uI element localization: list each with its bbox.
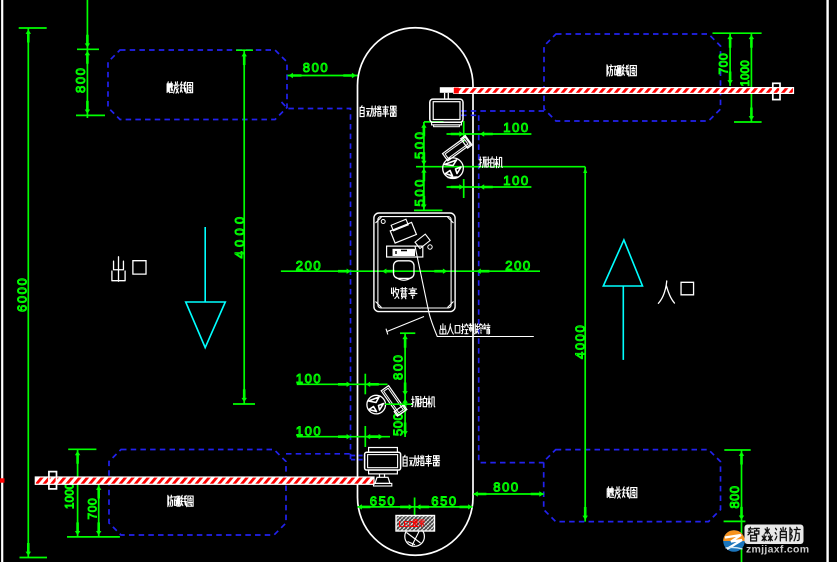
svg-text:650: 650 xyxy=(431,494,458,509)
svg-text:800: 800 xyxy=(493,480,520,495)
svg-text:100: 100 xyxy=(503,120,530,135)
svg-text:500: 500 xyxy=(412,130,427,160)
svg-text:zmjjaxf.com: zmjjaxf.com xyxy=(746,544,809,556)
svg-text:700: 700 xyxy=(86,498,100,520)
svg-text:800: 800 xyxy=(73,67,88,94)
svg-text:100: 100 xyxy=(296,371,323,386)
svg-text:6000: 6000 xyxy=(15,277,30,312)
svg-text:1000: 1000 xyxy=(65,483,77,509)
svg-text:4000: 4000 xyxy=(573,324,588,359)
svg-text:100: 100 xyxy=(296,424,323,439)
svg-text:800: 800 xyxy=(727,486,742,509)
svg-text:1000: 1000 xyxy=(740,60,752,86)
svg-text:800: 800 xyxy=(391,354,406,381)
svg-text:100: 100 xyxy=(503,173,530,188)
svg-text:700: 700 xyxy=(717,53,731,75)
svg-text:LED: LED xyxy=(399,520,415,529)
svg-text:800: 800 xyxy=(303,60,330,75)
svg-text:4000: 4000 xyxy=(232,213,247,259)
svg-text:200: 200 xyxy=(505,258,532,273)
svg-text:650: 650 xyxy=(370,494,397,509)
svg-text:500: 500 xyxy=(412,177,427,207)
svg-text:200: 200 xyxy=(296,258,323,273)
